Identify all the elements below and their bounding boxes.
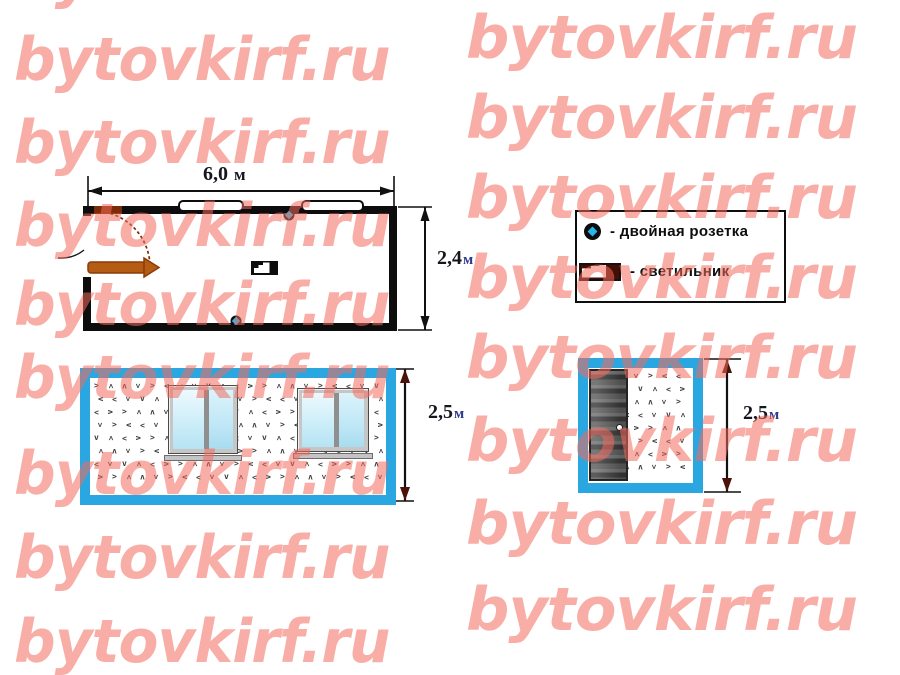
hatch-mark: > xyxy=(94,460,99,468)
hatch-mark: v xyxy=(180,475,188,480)
front-elevation-drawing: ><v<>v><v<>v><v<>v><vv><v<>v><v<>v><v<>v… xyxy=(80,368,396,505)
hatch-mark: v xyxy=(666,411,671,419)
watermark-text: bytovkirf.ru xyxy=(14,30,389,90)
hatch-mark: > xyxy=(178,460,183,468)
door-opening xyxy=(82,216,92,277)
hatch-mark: > xyxy=(94,382,99,390)
hatch-mark: < xyxy=(274,384,282,389)
hatch-mark: > xyxy=(112,421,117,429)
hatch-mark: < xyxy=(124,475,132,480)
hatch-mark: > xyxy=(252,473,257,481)
door-frame-mark xyxy=(94,206,122,214)
window-pane xyxy=(302,393,334,447)
hatch-mark: > xyxy=(112,395,117,403)
hatch-mark: v xyxy=(374,382,379,390)
end-elevation-height-dimension xyxy=(704,359,741,492)
hatch-mark: v xyxy=(264,397,272,402)
hatch-mark: < xyxy=(376,475,384,480)
hatch-mark: v xyxy=(122,382,127,390)
dimension-value: 2,5 xyxy=(428,401,453,423)
hatch-mark: < xyxy=(134,384,142,389)
hatch-mark: > xyxy=(150,382,155,390)
double-socket-symbol xyxy=(231,316,242,327)
plan-height-dimension xyxy=(398,207,432,330)
hatch-mark: v xyxy=(94,434,99,442)
hatch-mark: v xyxy=(106,410,114,415)
hatch-mark: < xyxy=(650,465,658,470)
hatch-mark: > xyxy=(290,434,295,442)
hatch-mark: v xyxy=(650,439,658,444)
hatch-mark: > xyxy=(280,473,285,481)
hatch-mark: < xyxy=(264,449,272,454)
plan-outer-wall xyxy=(83,206,397,331)
hatch-mark: < xyxy=(246,410,254,415)
hatch-mark: < xyxy=(134,462,142,467)
door-outer-swing-arc xyxy=(58,250,84,258)
legend-label: - светильник xyxy=(630,262,729,281)
watermark-text: bytovkirf.ru xyxy=(14,528,389,588)
hatch-mark: v xyxy=(660,374,668,379)
hatch-mark: < xyxy=(152,397,160,402)
door-swing-arc xyxy=(94,211,150,267)
hatch-mark: < xyxy=(650,413,658,418)
dimension-value: 6,0 xyxy=(203,163,228,185)
hatch-mark: v xyxy=(264,475,272,480)
watermark-layer: bytovkirf.rubytovkirf.rubytovkirf.rubyto… xyxy=(0,0,900,675)
hatch-mark: v xyxy=(280,447,285,455)
watermark-text: bytovkirf.ru xyxy=(14,0,389,6)
hatch-mark: > xyxy=(262,382,267,390)
hatch-mark: < xyxy=(208,475,216,480)
hatch-mark: > xyxy=(140,447,145,455)
hatch-mark: < xyxy=(320,475,328,480)
hatch-mark: v xyxy=(290,460,295,468)
hatch-mark: < xyxy=(152,423,160,428)
legend-box: - двойная розетка - светильник xyxy=(575,210,786,303)
hatch-mark: > xyxy=(150,460,155,468)
dimension-unit: м xyxy=(463,252,473,268)
hatch-mark: > xyxy=(648,424,653,432)
plan-window xyxy=(302,201,363,211)
hatch-mark: v xyxy=(290,382,295,390)
hatch-mark: < xyxy=(218,462,226,467)
hatch-mark: v xyxy=(124,423,132,428)
hatch-mark: v xyxy=(262,434,267,442)
watermark-text: bytovkirf.ru xyxy=(14,113,389,173)
hatch-mark: < xyxy=(678,439,686,444)
hatch-mark: v xyxy=(308,473,313,481)
hatch-mark: > xyxy=(676,372,681,380)
hatch-mark: < xyxy=(678,413,686,418)
ceiling-light-icon xyxy=(579,263,621,281)
hatch-mark: < xyxy=(632,400,640,405)
hatch-mark: v xyxy=(206,460,211,468)
hatch-mark: > xyxy=(346,460,351,468)
hatch-mark: < xyxy=(660,400,668,405)
end-elevation-drawing: ><v<>v>v><v<>v>v><v<><>v><v<v<>v><v<v<>v… xyxy=(578,358,703,493)
hatch-mark: < xyxy=(152,475,160,480)
watermark-text: bytovkirf.ru xyxy=(14,612,389,672)
watermark-text: bytovkirf.ru xyxy=(466,8,857,68)
hatch-mark: < xyxy=(376,397,384,402)
hatch-mark: < xyxy=(246,436,254,441)
hatch-mark: < xyxy=(106,462,114,467)
hatch-mark: > xyxy=(280,395,285,403)
window xyxy=(297,388,369,452)
hatch-mark: > xyxy=(290,408,295,416)
hatch-mark: > xyxy=(666,463,671,471)
hatch-mark: v xyxy=(678,465,686,470)
front-elevation-height-label: 2,5м xyxy=(428,401,464,424)
hatch-mark: < xyxy=(376,449,384,454)
dimension-unit: м xyxy=(769,407,779,423)
plan-height-dimension-label: 2,4м xyxy=(437,247,473,270)
legend-label: - двойная розетка xyxy=(610,222,748,241)
hatch-mark: < xyxy=(96,449,104,454)
hatch-mark: > xyxy=(280,421,285,429)
hatch-mark: v xyxy=(376,423,384,428)
hatch-mark: > xyxy=(648,450,653,458)
hatch-mark: > xyxy=(336,473,341,481)
hatch-mark: v xyxy=(162,462,170,467)
hatch-mark: < xyxy=(124,397,132,402)
hatch-mark: > xyxy=(666,437,671,445)
hatch-mark: > xyxy=(150,434,155,442)
hatch-mark: v xyxy=(274,410,282,415)
hatch-mark: v xyxy=(96,397,104,402)
hatch-mark: v xyxy=(96,475,104,480)
hatch-mark: > xyxy=(318,460,323,468)
hatch-mark: > xyxy=(94,408,99,416)
plan-room-interior xyxy=(91,214,389,323)
ceiling-light-symbol xyxy=(251,261,278,275)
hatch-mark: < xyxy=(264,423,272,428)
watermark-text: bytovkirf.ru xyxy=(14,196,389,256)
hatch-mark: > xyxy=(112,473,117,481)
window-pane xyxy=(173,390,204,449)
end-elevation-height-label: 2,5м xyxy=(743,402,779,425)
watermark-text: bytovkirf.ru xyxy=(466,88,857,148)
hatch-mark: > xyxy=(252,395,257,403)
hatch-mark: > xyxy=(648,372,653,380)
hatch-mark: v xyxy=(150,408,155,416)
hatch-mark: v xyxy=(252,421,257,429)
hatch-mark: < xyxy=(292,475,300,480)
hatch-mark: v xyxy=(638,385,643,393)
hatch-mark: > xyxy=(140,421,145,429)
dimension-value: 2,4 xyxy=(437,247,462,269)
floor-plan-drawing xyxy=(0,0,900,675)
hatch-mark: > xyxy=(168,473,173,481)
dimension-value: 2,5 xyxy=(743,402,768,424)
hatch-mark: v xyxy=(246,462,254,467)
hatch-mark: > xyxy=(374,408,379,416)
hatch-mark: v xyxy=(676,424,681,432)
hatch-mark: v xyxy=(112,447,117,455)
door-leaf xyxy=(88,258,159,277)
hatch-mark: v xyxy=(648,398,653,406)
double-socket-icon xyxy=(584,223,601,240)
hatch-mark: < xyxy=(190,462,198,467)
hatch-mark: < xyxy=(274,436,282,441)
hatch-mark: > xyxy=(122,434,127,442)
hatch-mark: > xyxy=(122,408,127,416)
hatch-mark: < xyxy=(96,423,104,428)
door-handle-icon xyxy=(617,425,622,430)
hatch-mark: v xyxy=(246,384,254,389)
hatch-mark: > xyxy=(262,408,267,416)
hatch-mark: < xyxy=(632,452,640,457)
hatch-mark: v xyxy=(122,460,127,468)
plan-window xyxy=(179,201,243,211)
legend-item-double-socket: - двойная розетка xyxy=(584,222,748,241)
hatch-mark: v xyxy=(374,460,379,468)
dimension-unit: м xyxy=(454,406,464,422)
watermark-text: bytovkirf.ru xyxy=(466,580,857,640)
hatch-mark: v xyxy=(140,473,145,481)
hatch-mark: v xyxy=(140,395,145,403)
hatch-mark: > xyxy=(638,411,643,419)
hatch-mark: < xyxy=(660,426,668,431)
hatch-mark: > xyxy=(196,473,201,481)
hatch-mark: > xyxy=(676,398,681,406)
drawing-canvas: 6,0м 2,4м 2,5м 2,5м - двойная розетка - … xyxy=(0,0,900,675)
hatch-mark: > xyxy=(638,437,643,445)
entrance-door xyxy=(589,369,628,481)
hatch-mark: < xyxy=(274,462,282,467)
legend-item-light: - светильник xyxy=(579,262,729,281)
hatch-mark: v xyxy=(678,387,686,392)
hatch-mark: v xyxy=(632,426,640,431)
hatch-mark: < xyxy=(358,462,366,467)
hatch-mark: < xyxy=(236,475,244,480)
hatch-mark: < xyxy=(302,462,310,467)
hatch-mark: > xyxy=(234,460,239,468)
dimension-unit: м xyxy=(234,165,246,184)
hatch-mark: > xyxy=(252,447,257,455)
hatch-mark: v xyxy=(330,462,338,467)
hatch-mark: > xyxy=(364,473,369,481)
hatch-mark: > xyxy=(666,385,671,393)
hatch-mark: > xyxy=(262,460,267,468)
hatch-mark: < xyxy=(650,387,658,392)
window-pane xyxy=(339,393,364,447)
hatch-mark: v xyxy=(348,475,356,480)
plan-width-dimension-label: 6,0м xyxy=(203,163,246,186)
hatch-mark: < xyxy=(134,410,142,415)
hatch-mark: v xyxy=(638,463,643,471)
hatch-mark: v xyxy=(224,473,229,481)
window-pane xyxy=(209,390,233,449)
hatch-mark: < xyxy=(106,436,114,441)
watermark-text: bytovkirf.ru xyxy=(466,494,857,554)
hatch-mark: < xyxy=(124,449,132,454)
hatch-mark: > xyxy=(676,450,681,458)
hatch-mark: < xyxy=(106,384,114,389)
hatch-mark: > xyxy=(374,434,379,442)
hatch-mark: v xyxy=(134,436,142,441)
window xyxy=(168,385,238,454)
hatch-mark: < xyxy=(632,374,640,379)
hatch-mark: v xyxy=(152,449,160,454)
double-socket-symbol xyxy=(284,210,295,221)
hatch-mark: v xyxy=(660,452,668,457)
watermark-text: bytovkirf.ru xyxy=(14,275,389,335)
